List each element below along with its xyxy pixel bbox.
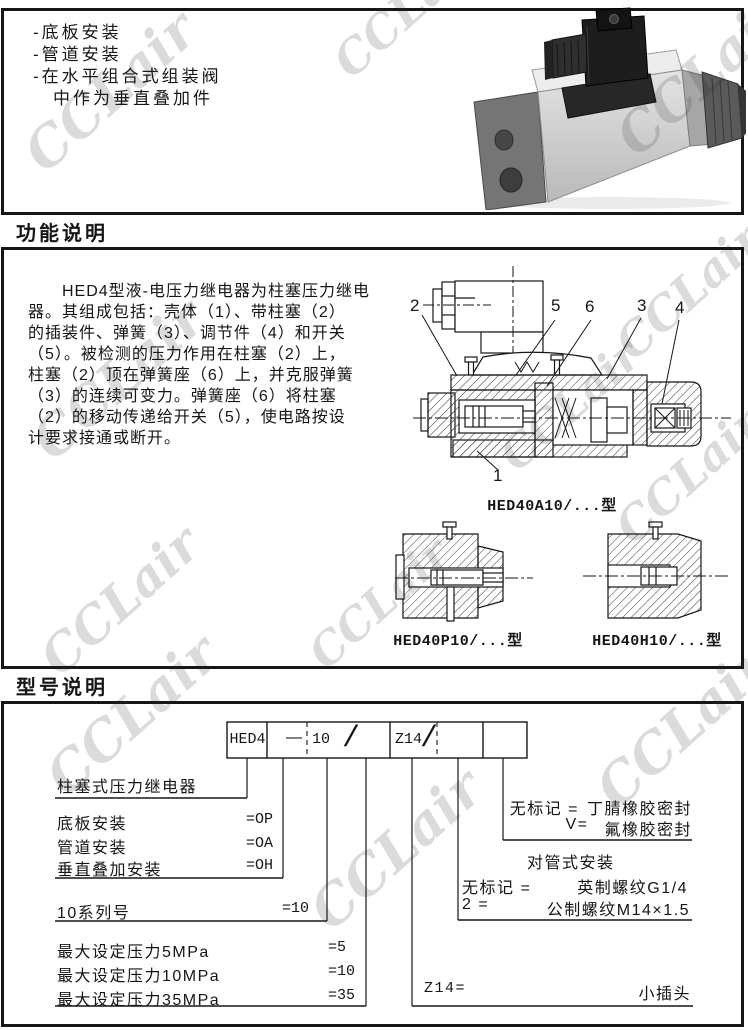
paragraph-line: （3）的连续可变力。弹簧座（6）将柱塞: [28, 386, 370, 407]
paragraph-line: 柱塞（2）顶在弹簧座（6）上，并克服弹簧: [28, 365, 370, 386]
paragraph-line: （5）。被检测的压力作用在柱塞（2）上，: [28, 344, 370, 365]
row-pipe-value: =OA: [246, 835, 273, 852]
thread-key-2: 2 =: [462, 896, 489, 920]
paragraph-line: 的插装件、弹簧（3）、调节件（4）和开关: [28, 323, 370, 344]
row-relay-type-label: 柱塞式压力继电器: [57, 773, 197, 797]
row-pipe-label: 管道安装: [57, 834, 127, 858]
plug-value: 小插头: [638, 980, 691, 1004]
row-pressure10-label: 最大设定压力10MPa: [57, 962, 220, 986]
catalog-page: -底板安装 -管道安装 -在水平组合式组装阀 中作为垂直叠加件: [0, 0, 748, 1030]
callout-2: 2: [410, 296, 419, 316]
callout-5: 5: [551, 296, 560, 316]
plug-row: Z14= 小插头: [424, 980, 691, 1004]
row-pressure5-label: 最大设定压力5MPa: [57, 938, 210, 962]
thread-row-1: 无标记 = 英制螺纹G1/4: [462, 874, 688, 898]
seal-key-v: V=: [565, 816, 588, 840]
code-cell-port: Z14: [395, 731, 422, 748]
photo-connector-screw: [610, 15, 619, 24]
row-subplate-label: 底板安装: [57, 810, 127, 834]
cross-section-h10: [583, 521, 733, 629]
code-cell-dash: —: [286, 729, 302, 747]
cross-section-p10: [393, 521, 543, 629]
thread-row-2: 2 = 公制螺纹M14×1.5: [462, 896, 690, 920]
section-title: 型号说明: [16, 671, 108, 700]
product-photo: [460, 6, 746, 210]
thread-value-m14: 公制螺纹M14×1.5: [547, 896, 690, 920]
row-pressure5-value: =5: [328, 939, 346, 956]
mounting-bullet-list: -底板安装 -管道安装 -在水平组合式组装阀 中作为垂直叠加件: [33, 22, 222, 110]
cross-section-main: [395, 258, 748, 526]
seal-value-fkm: 氟橡胶密封: [604, 816, 692, 840]
thread-key-none: 无标记 =: [462, 874, 531, 898]
row-vertical-stack-value: =OH: [246, 857, 273, 874]
bullet-line: -管道安装: [33, 44, 222, 66]
code-cell-series: 10: [312, 731, 330, 748]
row-pressure10-value: =10: [328, 963, 355, 980]
bullet-line: -在水平组合式组装阀: [33, 66, 222, 88]
row-pressure35-value: =35: [328, 987, 355, 1004]
bullet-line: -底板安装: [33, 22, 222, 44]
section-header-function: 功能说明: [1, 212, 744, 250]
row-series-value: =10: [282, 900, 309, 917]
bullet-line: 中作为垂直叠加件: [33, 88, 222, 110]
row-series-label: 10系列号: [57, 899, 130, 923]
paragraph-line: 计要求接通或断开。: [28, 428, 370, 449]
callout-1: 1: [493, 466, 502, 486]
function-paragraph: HED4型液-电压力继电器为柱塞压力继电 器。其组成包括：壳体（1）、带柱塞（2…: [28, 281, 370, 449]
section-header-model: 型号说明: [1, 666, 744, 704]
figure-caption-main: HED40A10/...型: [472, 494, 632, 515]
plug-key: Z14=: [424, 980, 466, 1004]
row-pressure35-label: 最大设定压力35MPa: [57, 986, 220, 1010]
code-cell-prefix: HED4: [228, 731, 267, 748]
pipe-mounting-title: 对管式安装: [527, 849, 615, 873]
code-cell-slash2: /: [420, 723, 438, 755]
watermark: CCLair: [32, 518, 209, 684]
paragraph-line: （2）的移动传递给开关（5），使电路按设: [28, 407, 370, 428]
paragraph-line: HED4型液-电压力继电器为柱塞压力继电: [28, 281, 370, 302]
section-title: 功能说明: [16, 217, 108, 246]
figure-caption-h10: HED40H10/...型: [582, 629, 732, 650]
callout-3: 3: [637, 296, 646, 316]
seal-row-2: V= 氟橡胶密封: [500, 816, 692, 840]
row-vertical-stack-label: 垂直叠加安装: [57, 856, 162, 880]
figure-caption-p10: HED40P10/...型: [383, 629, 533, 650]
code-cell-slash1: /: [342, 723, 360, 755]
callout-6: 6: [585, 297, 594, 317]
callout-4: 4: [675, 298, 684, 318]
paragraph-line: 器。其组成包括：壳体（1）、带柱塞（2）: [28, 302, 370, 323]
thread-value-g14: 英制螺纹G1/4: [577, 874, 688, 898]
row-subplate-value: =OP: [246, 811, 273, 828]
